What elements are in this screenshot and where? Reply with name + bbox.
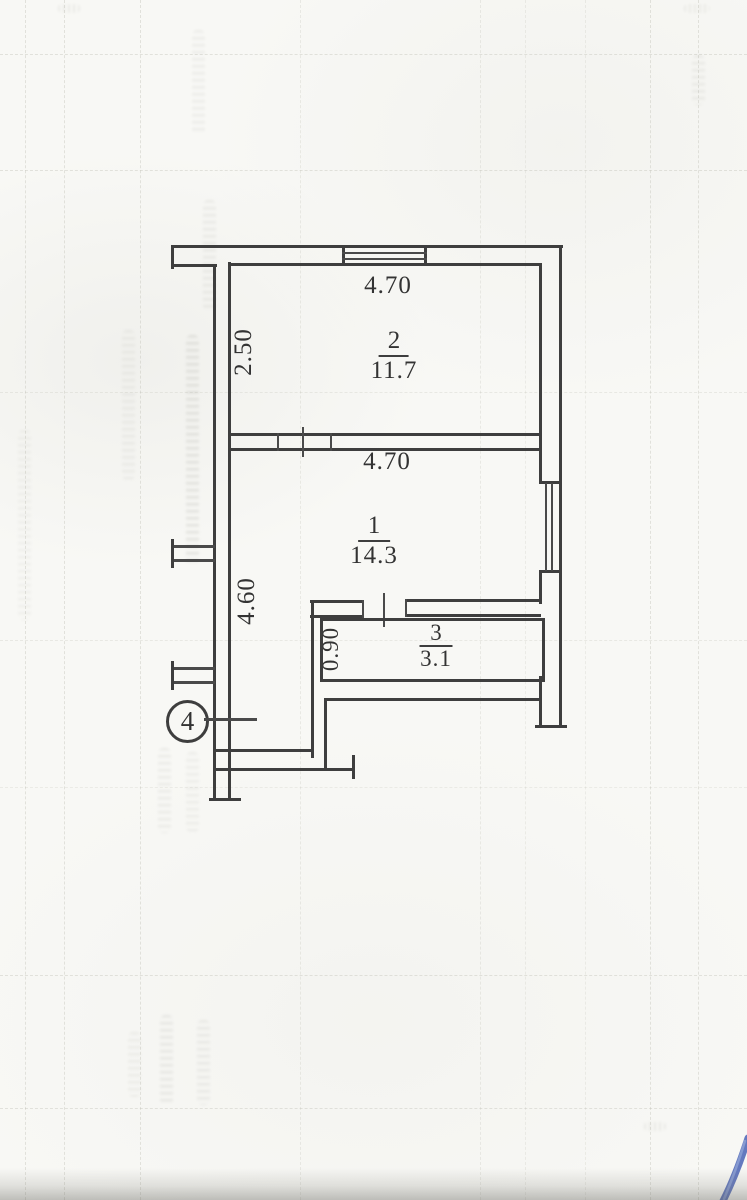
bleedthrough-grid-line-h [0, 1108, 747, 1109]
bleedthrough-text-smudge [18, 430, 31, 620]
room1-area: 14.3 [350, 543, 398, 568]
window-top-right-jamb [424, 245, 427, 266]
opening-symbol-line [173, 545, 215, 548]
bleedthrough-text-smudge [192, 30, 205, 135]
bleedthrough-grid-line-v [64, 0, 65, 1200]
room3-area: 3.1 [420, 648, 453, 670]
bleedthrough-text-smudge [128, 1032, 141, 1097]
bleedthrough-text-smudge [197, 1020, 210, 1105]
wall-top-outer [171, 245, 563, 248]
door-room2-leaf-tick [302, 427, 304, 457]
wall-room1-room3-lower-right [407, 614, 541, 617]
bleedthrough-text-smudge [644, 1122, 666, 1131]
opening-symbol-line [173, 667, 215, 670]
bleedthrough-grid-line-h [0, 392, 747, 393]
bleedthrough-grid-line-v [650, 0, 651, 1200]
bleedthrough-text-smudge [158, 748, 171, 833]
wall-hall-right-inner [539, 676, 542, 727]
wall-room2-room1-upper [228, 433, 541, 436]
door-room3-jamb [405, 599, 407, 617]
opening-symbol-end-bar [171, 661, 174, 690]
wall-top-inner-left [171, 264, 217, 267]
wall-room1-room3-upper-left [310, 600, 362, 603]
room1-number: 1 [350, 514, 398, 538]
unit-pointer-line [204, 718, 257, 721]
bleedthrough-text-smudge [684, 4, 710, 13]
window-top-pane-line [342, 252, 427, 254]
bleedthrough-grid-line-v [698, 0, 699, 1200]
bleedthrough-text-smudge [692, 55, 705, 105]
bleedthrough-grid-line-h [0, 975, 747, 976]
room2-label: 2 11.7 [371, 329, 418, 383]
bleedthrough-text-smudge [160, 1015, 173, 1105]
room2-number: 2 [371, 329, 418, 353]
dim-room3-height: 0.90 [318, 627, 344, 671]
dim-room2-height: 2.50 [230, 328, 258, 376]
wall-right-outer [559, 245, 562, 728]
dim-room1-width: 4.70 [363, 448, 411, 476]
bleedthrough-text-smudge [186, 752, 199, 832]
opening-symbol-line [173, 681, 215, 684]
window-top-left-jamb [342, 245, 345, 266]
door-room3-jamb [362, 600, 364, 618]
unit-number: 4 [181, 706, 195, 737]
dim-room1-height: 4.60 [233, 577, 261, 625]
wall-corridor-end-cap [352, 755, 355, 779]
door-room2-jamb [330, 433, 332, 451]
bleedthrough-grid-line-v [300, 0, 301, 1200]
wall-left-bottom-cap [209, 798, 241, 801]
wall-hall-left [324, 698, 327, 768]
bleedthrough-text-smudge [58, 4, 80, 13]
bleedthrough-grid-line-v [140, 0, 141, 1200]
opening-symbol-line [173, 559, 215, 562]
wall-corridor-bottom-inner [216, 749, 313, 752]
bleedthrough-grid-line-v [585, 0, 586, 1200]
window-top-pane-line [342, 258, 427, 260]
window-right-pane-line [545, 483, 547, 571]
room3-label: 3 3.1 [420, 622, 453, 670]
room3-number: 3 [420, 622, 453, 643]
window-right-pane-line [551, 483, 553, 571]
bleedthrough-text-smudge [186, 335, 199, 565]
wall-corridor-bottom-outer [216, 768, 354, 771]
wall-room1-room3-upper-right [407, 599, 541, 602]
dim-room2-width: 4.70 [364, 272, 412, 300]
unit-number-circle: 4 [166, 700, 209, 743]
bleedthrough-grid-line-h [0, 787, 747, 788]
opening-symbol-end-bar [171, 539, 174, 568]
pen-mark-blue [0, 0, 747, 1200]
bleedthrough-grid-line-h [0, 54, 747, 55]
wall-room2-top-inner [228, 263, 541, 266]
room1-label: 1 14.3 [350, 514, 398, 568]
bleedthrough-grid-line-h [0, 170, 747, 171]
wall-right-end-cap [535, 725, 567, 728]
wall-room3-left-outer [311, 600, 314, 758]
page-bottom-shadow [0, 1168, 747, 1200]
door-room2-jamb [277, 433, 279, 451]
wall-hall-top [324, 698, 542, 701]
room2-area: 11.7 [371, 358, 418, 383]
bleedthrough-text-smudge [122, 330, 135, 480]
scanned-floor-plan-page: 4 4.70 2.50 2 11.7 4.70 4.60 1 14.3 0.90… [0, 0, 747, 1200]
